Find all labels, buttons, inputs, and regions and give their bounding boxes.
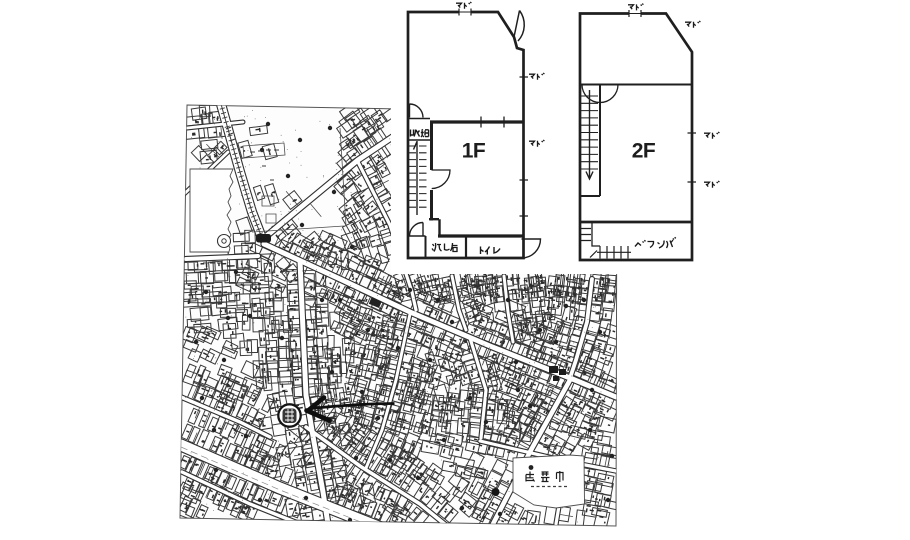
svg-text:1F: 1F (462, 140, 486, 163)
svg-text:2F: 2F (632, 140, 656, 163)
